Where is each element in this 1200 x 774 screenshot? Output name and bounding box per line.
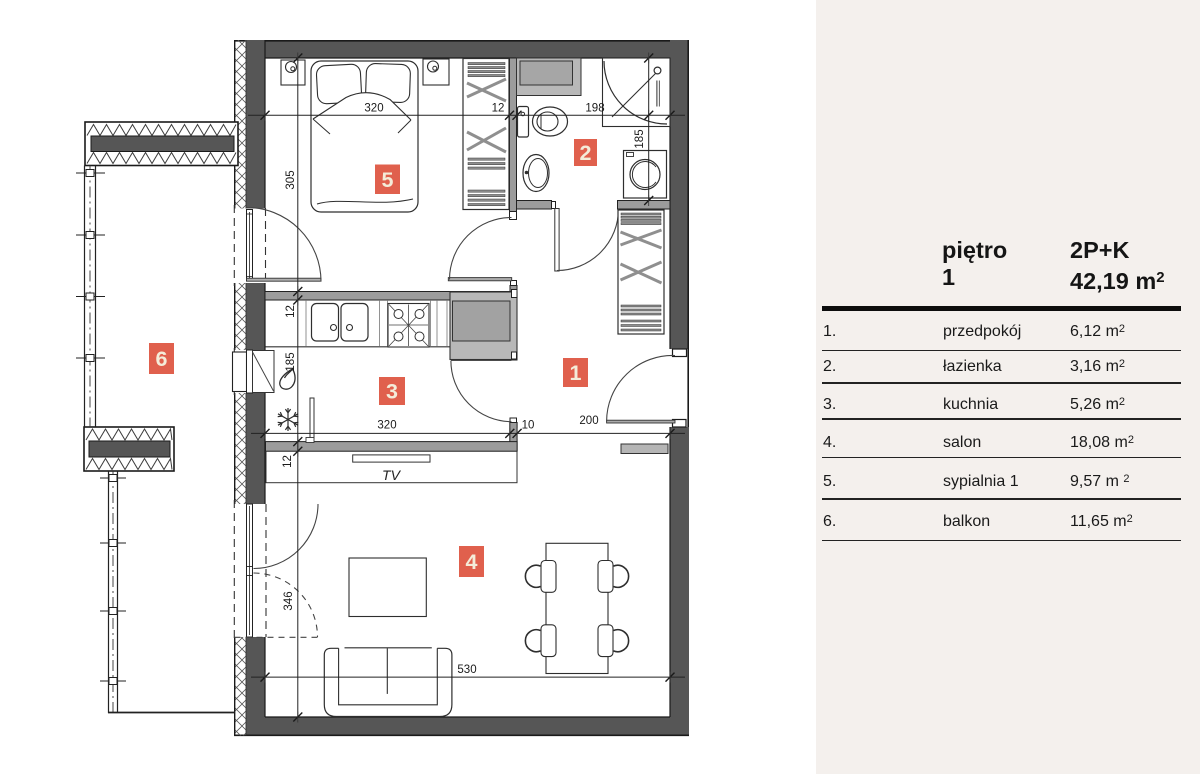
svg-text:12: 12 — [285, 305, 297, 318]
svg-text:320: 320 — [377, 420, 396, 432]
svg-text:12: 12 — [282, 455, 294, 468]
svg-text:4: 4 — [466, 550, 478, 574]
svg-text:TV: TV — [382, 467, 402, 483]
svg-text:320: 320 — [364, 103, 383, 115]
svg-text:185: 185 — [285, 352, 297, 371]
svg-text:6: 6 — [156, 347, 168, 371]
svg-text:200: 200 — [579, 415, 598, 427]
svg-text:10: 10 — [522, 420, 535, 432]
svg-text:530: 530 — [457, 664, 476, 676]
svg-text:1: 1 — [570, 361, 582, 385]
svg-text:346: 346 — [283, 591, 295, 610]
svg-text:2: 2 — [580, 141, 592, 165]
svg-text:198: 198 — [585, 103, 604, 115]
svg-text:5: 5 — [382, 168, 394, 192]
svg-text:185: 185 — [634, 129, 646, 148]
svg-text:305: 305 — [285, 170, 297, 189]
svg-text:12: 12 — [492, 103, 505, 115]
svg-text:3: 3 — [386, 380, 398, 404]
